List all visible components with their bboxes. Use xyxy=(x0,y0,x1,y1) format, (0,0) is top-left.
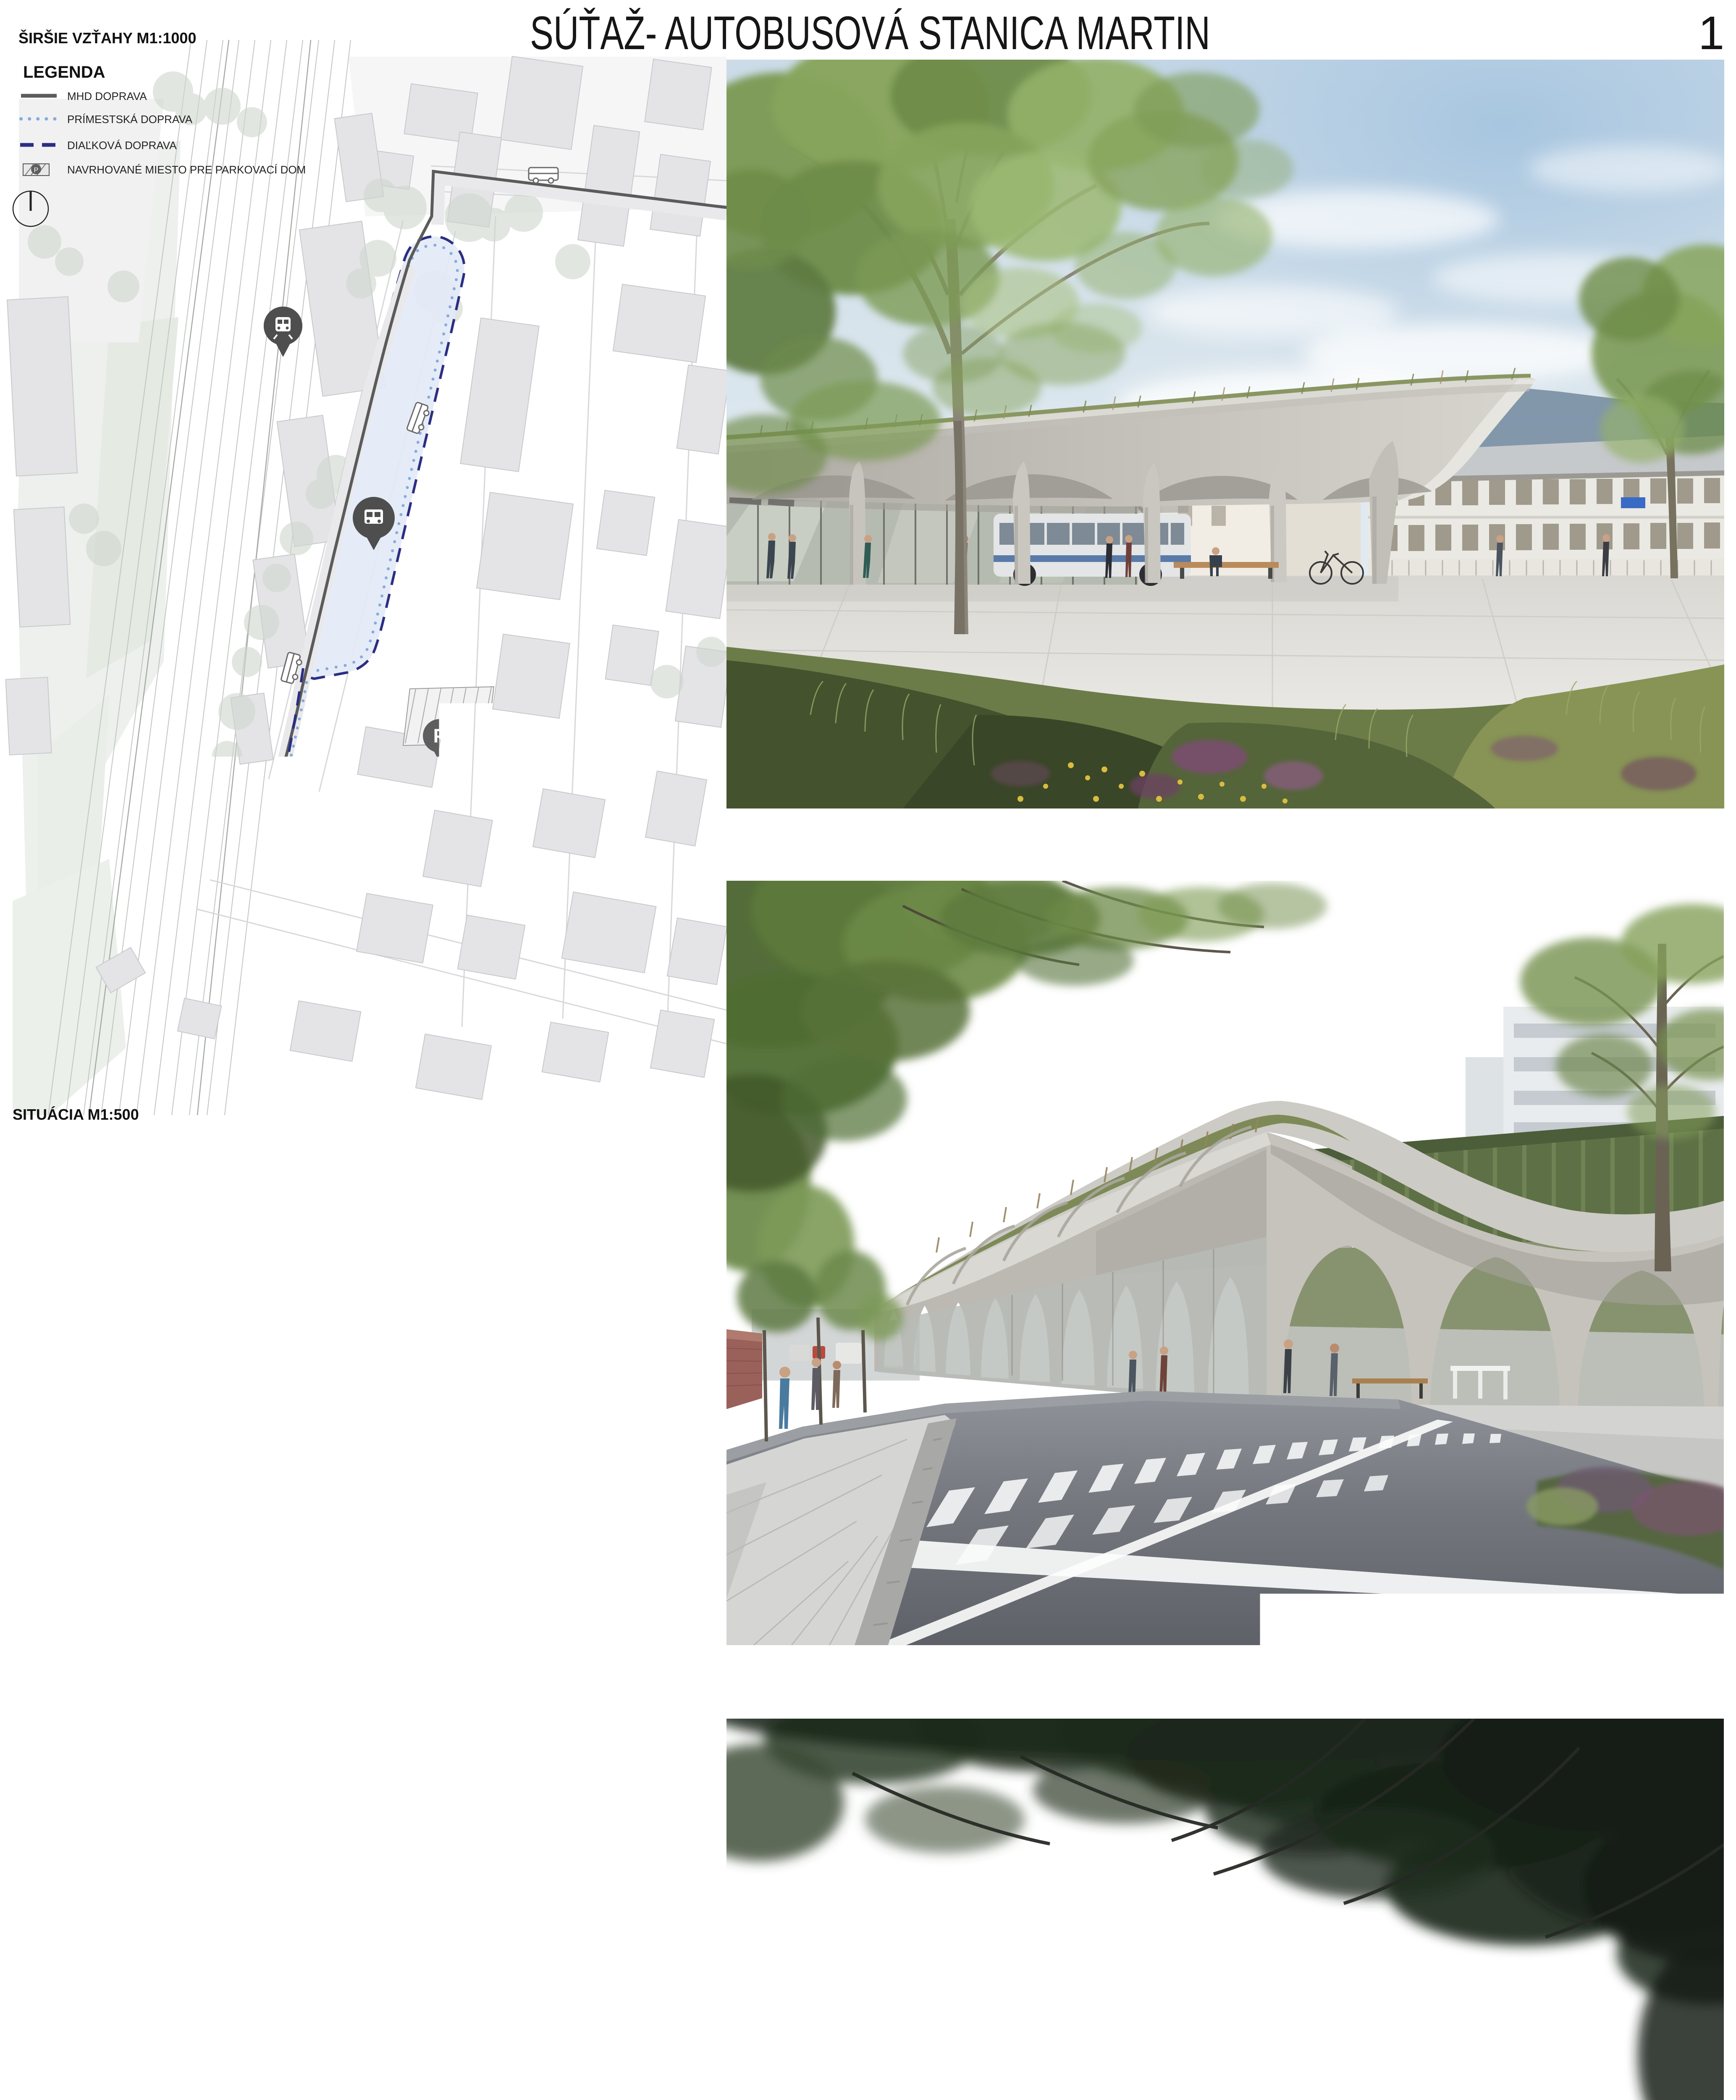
svg-text:NAVRHOVANÉ MIESTO PRE PARKOVAC: NAVRHOVANÉ MIESTO PRE PARKOVACÍ DOM xyxy=(67,163,306,176)
svg-text:CENTRUM MARTIN: CENTRUM MARTIN xyxy=(603,1234,703,1260)
svg-text:P: P xyxy=(433,725,446,747)
svg-text:NAVRHOVANÉ MIESTO PRE PARKOVAC: NAVRHOVANÉ MIESTO PRE PARKOVACÍ DOM xyxy=(50,1284,289,1297)
svg-text:SPEVNENÉ PLOCHY: SPEVNENÉ PLOCHY xyxy=(50,1236,158,1249)
svg-text:DIAĽKOVÁ DOPRAVA: DIAĽKOVÁ DOPRAVA xyxy=(67,139,177,152)
svg-text:P: P xyxy=(34,167,39,174)
svg-text:ZELEŇ: ZELEŇ xyxy=(50,1261,86,1274)
svg-text:PEŠIE TRASY: PEŠIE TRASY xyxy=(50,1187,122,1200)
svg-text:MHD DOPRAVA: MHD DOPRAVA xyxy=(67,90,147,102)
svg-text:P: P xyxy=(21,1286,26,1296)
svg-text:PRÍMESTSKÁ DOPRAVA: PRÍMESTSKÁ DOPRAVA xyxy=(67,113,193,126)
svg-text:LEGENDA: LEGENDA xyxy=(12,1163,94,1182)
svg-text:AUTOBUSOVÁ STANICA: AUTOBUSOVÁ STANICA xyxy=(50,1212,176,1225)
svg-text:LEGENDA: LEGENDA xyxy=(23,63,105,81)
